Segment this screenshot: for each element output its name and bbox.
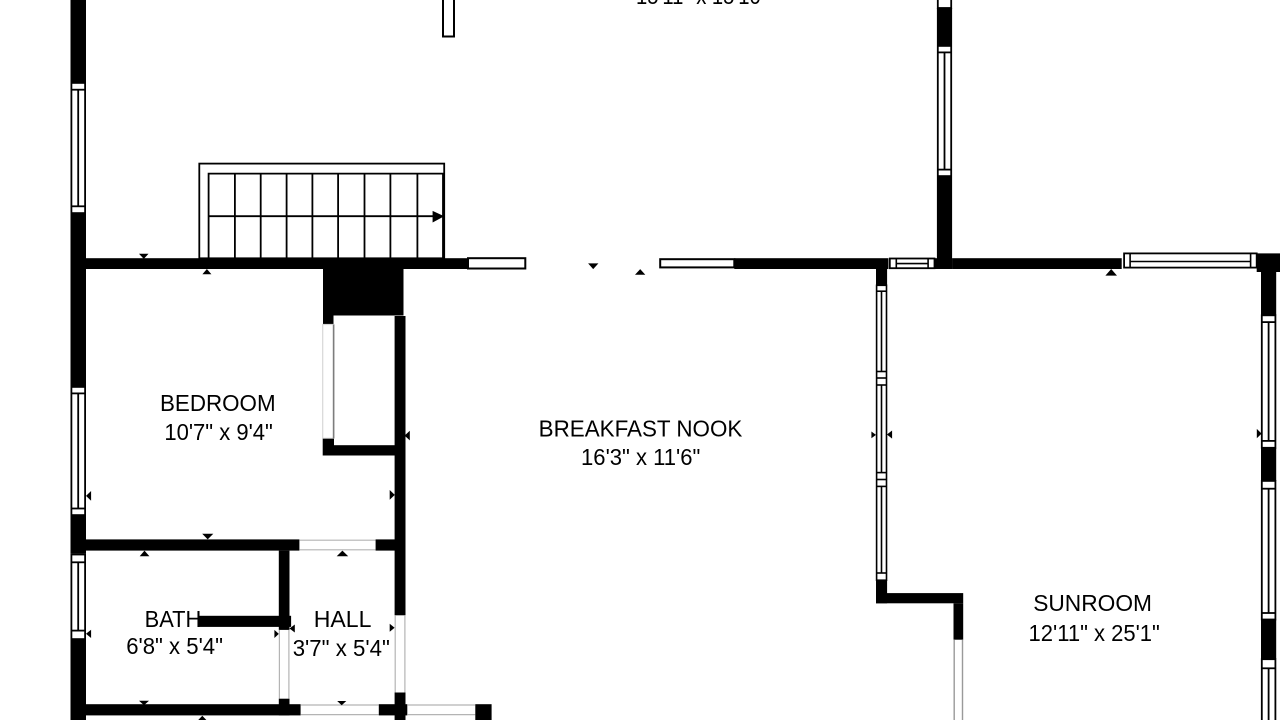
svg-text:BREAKFAST NOOK: BREAKFAST NOOK bbox=[539, 416, 743, 442]
svg-text:HALL: HALL bbox=[314, 606, 372, 632]
svg-text:16'3" x 11'6": 16'3" x 11'6" bbox=[581, 444, 700, 470]
svg-text:SUNROOM: SUNROOM bbox=[1033, 590, 1152, 616]
svg-text:10'7" x 9'4": 10'7" x 9'4" bbox=[164, 419, 273, 445]
svg-text:3'7" x 5'4": 3'7" x 5'4" bbox=[293, 635, 390, 661]
svg-text:6'8" x 5'4": 6'8" x 5'4" bbox=[126, 633, 223, 659]
svg-text:BATH: BATH bbox=[145, 606, 202, 632]
svg-text:15'11" x 15'10": 15'11" x 15'10" bbox=[636, 0, 768, 9]
svg-text:BEDROOM: BEDROOM bbox=[160, 390, 276, 416]
svg-text:12'11" x 25'1": 12'11" x 25'1" bbox=[1029, 620, 1160, 646]
